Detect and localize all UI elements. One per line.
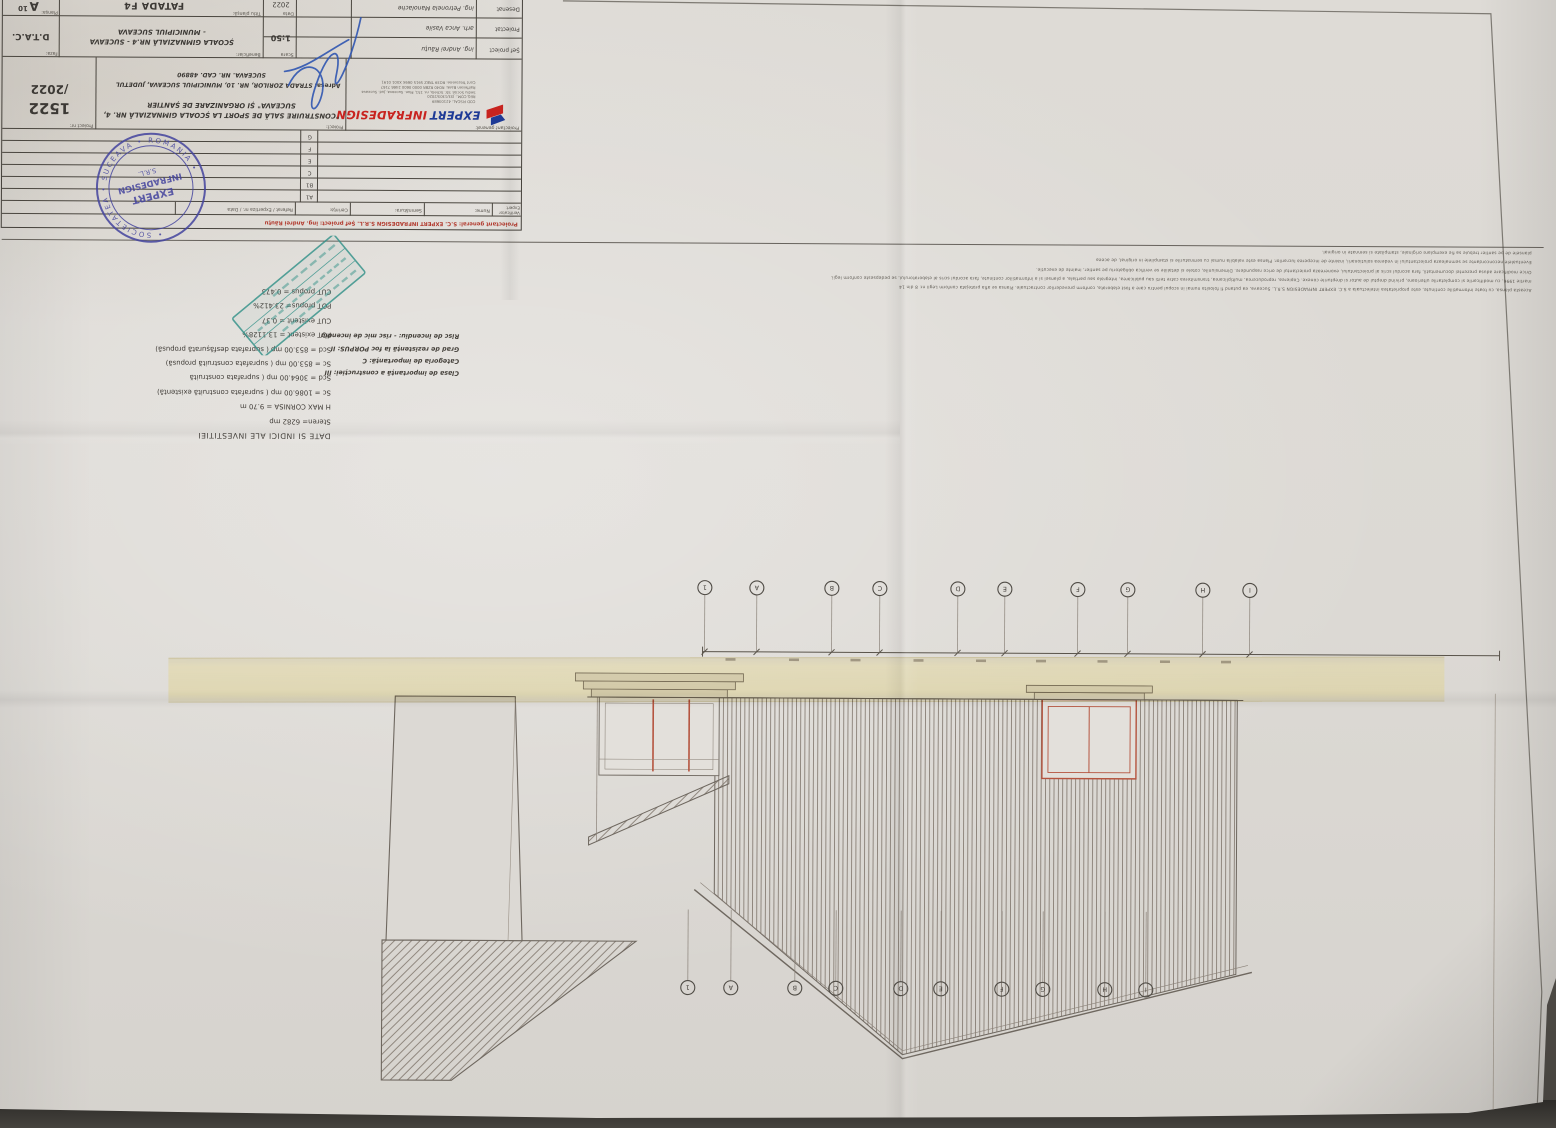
grid-line bbox=[300, 130, 301, 202]
drawn-by-name: ing. Petronela Manolache bbox=[398, 4, 474, 11]
project-number-year: /2022 bbox=[31, 82, 69, 96]
photo-stage: IHGFEDCBA1IHGFEDCBA1 Aceasta plansa, cu … bbox=[0, 0, 1556, 1128]
company-detail-line: Sediu Social: Str. Schela, nr. 151, Mun.… bbox=[361, 89, 475, 94]
company-detail-line: Cont Trezorerie: RO39 TREZ 5915 069X XX0… bbox=[362, 79, 476, 84]
axis-label: I bbox=[1145, 986, 1147, 993]
grid-line bbox=[2, 176, 521, 180]
beneficiary-label: Beneficiar: bbox=[236, 51, 261, 56]
scale-label: Scara bbox=[281, 51, 294, 56]
grid-line bbox=[351, 0, 352, 59]
phase-label: Faza: bbox=[46, 50, 58, 55]
axis-label: B bbox=[830, 584, 834, 591]
axis-label: E bbox=[939, 985, 943, 992]
grid-line bbox=[263, 0, 264, 58]
axis-label: G bbox=[1125, 586, 1130, 593]
tower-volume bbox=[386, 696, 523, 941]
project-label: Proiect: bbox=[326, 124, 343, 129]
verifier-expert-header: Verificator Expert bbox=[494, 206, 520, 216]
axis-label: I bbox=[1249, 586, 1251, 593]
axis-label: A bbox=[754, 584, 759, 591]
address-text: STRADA ZORILOR, NR. 10, MUNICIPIUL SUCEA… bbox=[116, 81, 313, 89]
grid-line bbox=[59, 0, 60, 57]
project-title-line1: "CONSTRUIRE SALĂ DE SPORT LA ȘCOALA GIMN… bbox=[103, 110, 339, 119]
beneficiary-line1: ȘCOALA GIMNAZIALĂ NR.4 - SUCEAVA bbox=[90, 37, 234, 46]
company-name-infradesign: INFRADESIGN bbox=[336, 108, 427, 122]
scale-value: 1:50 bbox=[271, 33, 291, 42]
grid-line bbox=[424, 203, 425, 216]
grid-line bbox=[350, 203, 351, 216]
sheet-content-rotated: IHGFEDCBA1IHGFEDCBA1 Aceasta plansa, cu … bbox=[0, 0, 1556, 1128]
company-logo-icon bbox=[483, 104, 507, 126]
sheet-number-label: Planșa: bbox=[41, 9, 58, 14]
requirement-header: Cerința: bbox=[330, 207, 348, 212]
address-label: Adresa: bbox=[314, 82, 340, 89]
project-title-line2: SUCEAVA" ȘI ORGANIZARE DE ȘANTIER bbox=[147, 101, 296, 110]
class-line: Grad de rezistență la foc PORPUS: II bbox=[289, 341, 459, 354]
axis-label: C bbox=[833, 984, 838, 991]
project-number-label: Proiect nr: bbox=[70, 122, 93, 127]
investment-indices-block: DATE SI INDICI ALE INVESTITIEI Steren= 6… bbox=[21, 283, 332, 443]
axis-label: F bbox=[1000, 985, 1004, 992]
grid-line bbox=[2, 200, 521, 204]
company-detail-line: REG.COM.: J33/1303/2020 bbox=[361, 93, 475, 98]
grid-line bbox=[95, 57, 96, 129]
date-value: 2022 bbox=[272, 0, 289, 8]
grid-line bbox=[2, 213, 521, 217]
gap-edge-line bbox=[597, 697, 598, 841]
index-line: CUT existent = 0.37 bbox=[21, 311, 331, 327]
sheet-title-label: Titlu planșă: bbox=[233, 10, 261, 15]
grid-line bbox=[2, 152, 521, 156]
axis-label: 1 bbox=[686, 983, 690, 990]
class-line: Categoria de importanță: C bbox=[289, 353, 459, 366]
address-line2: SUCEAVA. NR. CAD. 48890 bbox=[177, 71, 266, 78]
beneficiary-line2: - MUNICIPIUL SUCEAVA bbox=[118, 28, 206, 36]
grid-line bbox=[476, 0, 477, 59]
index-line: Sc = 853.00 mp ( suprafata construită pr… bbox=[21, 355, 331, 371]
axis-label: A bbox=[728, 983, 733, 990]
class-line: Clasa de importanță a construcției: III bbox=[289, 365, 459, 378]
index-line: POT existent = 13.1128% bbox=[21, 326, 331, 342]
grid-line bbox=[175, 202, 176, 215]
revision-row-label: G bbox=[301, 134, 318, 140]
index-line: Scd = 3064.00 mp ( suprafata construită bbox=[21, 369, 331, 385]
company-detail-line: COD FISCAL: 42103689 bbox=[361, 98, 475, 103]
chief-designer-name: ing. Andrei Răuțu bbox=[421, 45, 473, 52]
address-line1: Adresa: STRADA ZORILOR, NR. 10, MUNICIPI… bbox=[116, 81, 341, 89]
index-line: POT propus= 23.412% bbox=[21, 297, 331, 313]
grid-line bbox=[2, 140, 521, 144]
name-header: Nume: bbox=[475, 208, 490, 213]
axis-label: H bbox=[1200, 586, 1205, 593]
class-line: Risc de incendiu: - risc mic de incendiu bbox=[289, 329, 459, 342]
axis-label: F bbox=[1076, 585, 1080, 592]
building-class-block: Clasa de importanță a construcției: III … bbox=[289, 329, 459, 379]
index-line: Steren= 6282 mp bbox=[21, 412, 331, 428]
axis-label: B bbox=[793, 984, 797, 991]
sheet-title: FATADA F4 bbox=[124, 0, 184, 11]
grid-line bbox=[264, 36, 522, 38]
grid-line bbox=[317, 131, 318, 203]
axis-label: C bbox=[877, 584, 882, 591]
entrance-canopy bbox=[589, 775, 729, 846]
revision-row-label: F bbox=[301, 146, 318, 152]
index-line: Scd = 853.00 mp ( suprafata desfășurată … bbox=[21, 340, 331, 356]
axis-label: D bbox=[955, 585, 960, 592]
axis-label: G bbox=[1040, 985, 1045, 992]
project-number: 1522 bbox=[28, 99, 70, 117]
revision-row-label: B1 bbox=[301, 182, 318, 188]
report-expertise-header: Referat / Expertiza nr. / Data bbox=[227, 207, 293, 212]
drawn-by-role: Desenat bbox=[497, 6, 520, 12]
grid-line bbox=[2, 128, 521, 132]
grid-line bbox=[2, 164, 521, 168]
axis-label: E bbox=[1003, 585, 1007, 592]
company-logo: EXPERT INFRADESIGN bbox=[336, 104, 507, 127]
designed-by-name: arh. Anca Vasile bbox=[426, 25, 474, 32]
revision-row-label: A1 bbox=[301, 194, 318, 200]
general-designer-red-line: Proiectant general: S.C. EXPERT INFRADES… bbox=[265, 220, 518, 227]
hall-facade-hatched bbox=[713, 698, 1237, 1057]
tower-roof-wedge bbox=[381, 940, 636, 1081]
phase-value: D.T.A.C. bbox=[12, 31, 50, 41]
masking-tape-strip bbox=[168, 657, 1444, 703]
indices-title: DATE SI INDICI ALE INVESTITIEI bbox=[21, 427, 331, 443]
drawing-sheet: IHGFEDCBA1IHGFEDCBA1 Aceasta plansa, cu … bbox=[0, 0, 1556, 1128]
grid-line bbox=[296, 0, 297, 58]
signature-header: Semnătura: bbox=[395, 207, 422, 212]
index-line: H MAX CORNISA = 9.70 m bbox=[21, 398, 331, 414]
sheet-number-digits: 10 bbox=[18, 4, 28, 12]
title-block: Proiectant general: S.C. EXPERT INFRADES… bbox=[1, 0, 523, 231]
index-line: CUT propus = 0.473 bbox=[21, 283, 331, 299]
company-details: COD FISCAL: 42103689 REG.COM.: J33/1303/… bbox=[361, 79, 475, 103]
date-label: Data bbox=[283, 10, 294, 15]
axis-label: D bbox=[898, 984, 903, 991]
dimension-line bbox=[703, 652, 1500, 656]
frame-left-line bbox=[1493, 694, 1495, 1112]
grid-line bbox=[2, 188, 521, 192]
axis-label: H bbox=[1102, 985, 1107, 992]
designed-by-role: Proiectat bbox=[495, 26, 520, 32]
revision-row-label: C bbox=[301, 170, 318, 176]
axis-label: 1 bbox=[703, 583, 707, 590]
grid-line bbox=[295, 202, 296, 215]
sheet-number-letter: A bbox=[30, 0, 39, 13]
revision-row-label: E bbox=[301, 158, 318, 164]
index-line: Sc = 1086.00 mp ( suprafata construită e… bbox=[21, 383, 331, 399]
company-name-expert: EXPERT bbox=[430, 108, 480, 122]
chief-designer-role: Șef proiect bbox=[490, 46, 520, 52]
grid-line bbox=[492, 203, 493, 216]
